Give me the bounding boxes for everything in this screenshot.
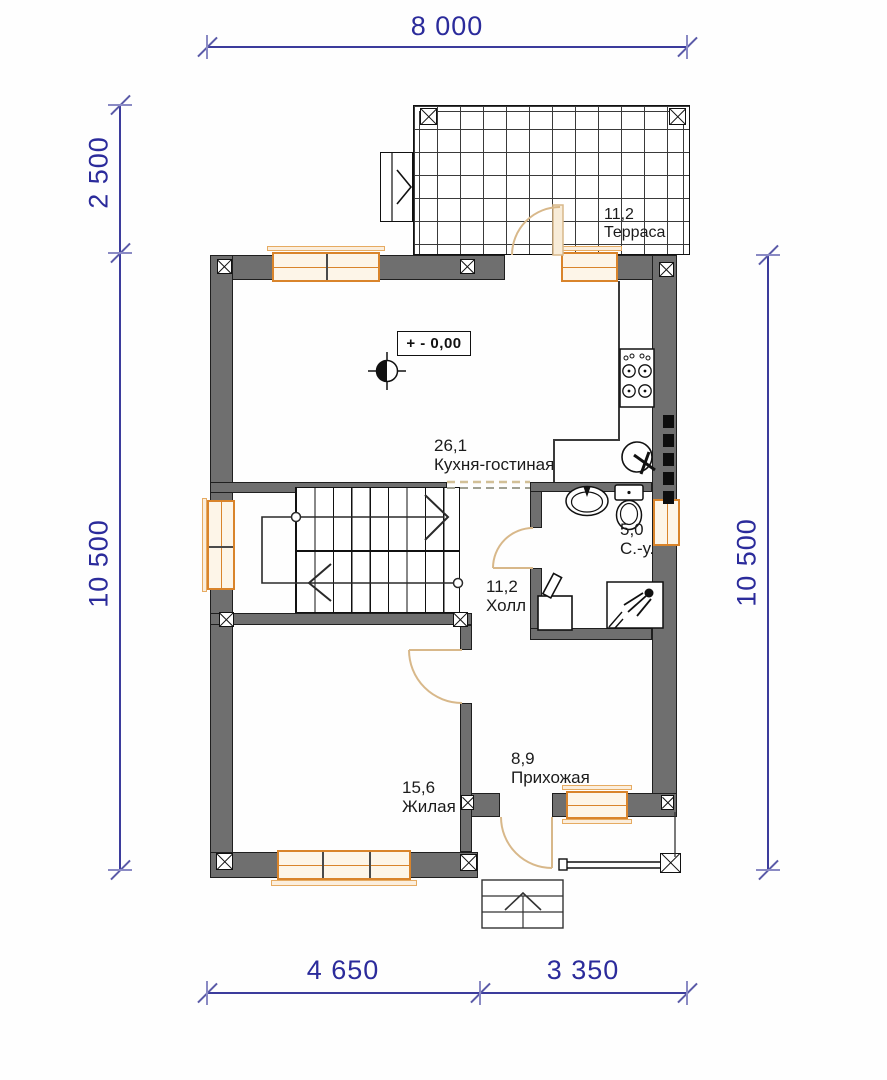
room-label-living: 15,6 Жилая (402, 779, 456, 816)
kitchen-zone-line (554, 281, 619, 482)
bathroom-door (493, 528, 533, 568)
dim-bottom-right-label: 3 350 (503, 955, 663, 986)
vent-duct (663, 434, 674, 447)
entrance-door (501, 817, 552, 868)
dim-line-left (119, 105, 121, 870)
stove-icon (620, 349, 654, 407)
dim-line-top (207, 46, 687, 48)
room-label-hall: 11,2 Холл (486, 578, 526, 615)
kitchen-sink-icon (622, 442, 655, 474)
wall-bath-top (530, 482, 652, 492)
wall-bath-bottom (530, 628, 652, 640)
dim-line-bottom (207, 992, 687, 994)
window-mullion (209, 546, 233, 548)
window-mullion (326, 254, 328, 280)
window-sill (562, 819, 632, 824)
room-name: Терраса (604, 224, 665, 242)
window-living-south (277, 850, 411, 880)
dim-right-label: 10 500 (732, 493, 763, 633)
window-bath-east (653, 499, 680, 546)
window-mullion (322, 852, 324, 878)
room-name: С.-у. (620, 540, 654, 559)
dim-left-upper-label: 2 500 (84, 103, 115, 243)
room-name: Кухня-гостиная (434, 456, 554, 475)
wall-living-right-upper (460, 625, 472, 650)
room-label-kitchen-living: 26,1 Кухня-гостиная (434, 437, 554, 474)
column-post (661, 795, 674, 810)
window-mullion (369, 852, 371, 878)
wall-stair-divider (210, 613, 472, 625)
column-post (460, 854, 477, 871)
window-sill (271, 880, 417, 886)
wall-living-right-lower (460, 703, 472, 852)
window-stairs-west (207, 500, 235, 590)
room-label-entry: 8,9 Прихожая (511, 750, 590, 787)
room-label-bathroom: 5,0 С.-у. (620, 521, 654, 558)
elevation-mark: + - 0,00 (397, 331, 471, 356)
column-post (660, 853, 681, 873)
column-post (460, 259, 475, 274)
column-post (217, 259, 232, 274)
room-area: 15,6 (402, 779, 456, 798)
terrace-steps (380, 152, 413, 222)
room-name: Прихожая (511, 769, 590, 788)
living-room-door (409, 650, 462, 703)
floor-plan: 8 000 4 650 3 350 2 500 10 500 10 500 (0, 0, 887, 1080)
room-area: 8,9 (511, 750, 590, 769)
vent-duct (663, 491, 674, 504)
dim-top-label: 8 000 (367, 11, 527, 42)
column-post (219, 612, 234, 627)
column-post (461, 795, 474, 810)
column-post (669, 108, 686, 125)
room-name: Холл (486, 597, 526, 616)
column-post (216, 853, 233, 870)
column-post (659, 262, 674, 277)
room-area: 11,2 (604, 206, 665, 224)
room-name: Жилая (402, 798, 456, 817)
stair-flight-upper (295, 487, 460, 551)
entrance-steps-icon (482, 880, 563, 928)
room-area: 11,2 (486, 578, 526, 597)
vent-duct (663, 472, 674, 485)
window-kitchen-north (272, 252, 380, 282)
room-label-terrace: 11,2 Терраса (604, 206, 665, 241)
window-entry-south (566, 791, 628, 819)
dim-bottom-left-label: 4 650 (263, 955, 423, 986)
dim-left-lower-label: 10 500 (84, 494, 115, 634)
window-terrace-side (561, 252, 618, 282)
vent-duct (663, 453, 674, 466)
stair-flight-lower (295, 551, 460, 613)
window-sill (557, 246, 622, 251)
benchmark-icon (368, 352, 406, 390)
column-post (420, 108, 437, 125)
window-sill (267, 246, 385, 251)
room-area: 5,0 (620, 521, 654, 540)
vent-duct (663, 415, 674, 428)
washing-machine-icon (538, 573, 572, 630)
room-area: 26,1 (434, 437, 554, 456)
dim-line-right (767, 255, 769, 870)
column-post (453, 612, 468, 627)
